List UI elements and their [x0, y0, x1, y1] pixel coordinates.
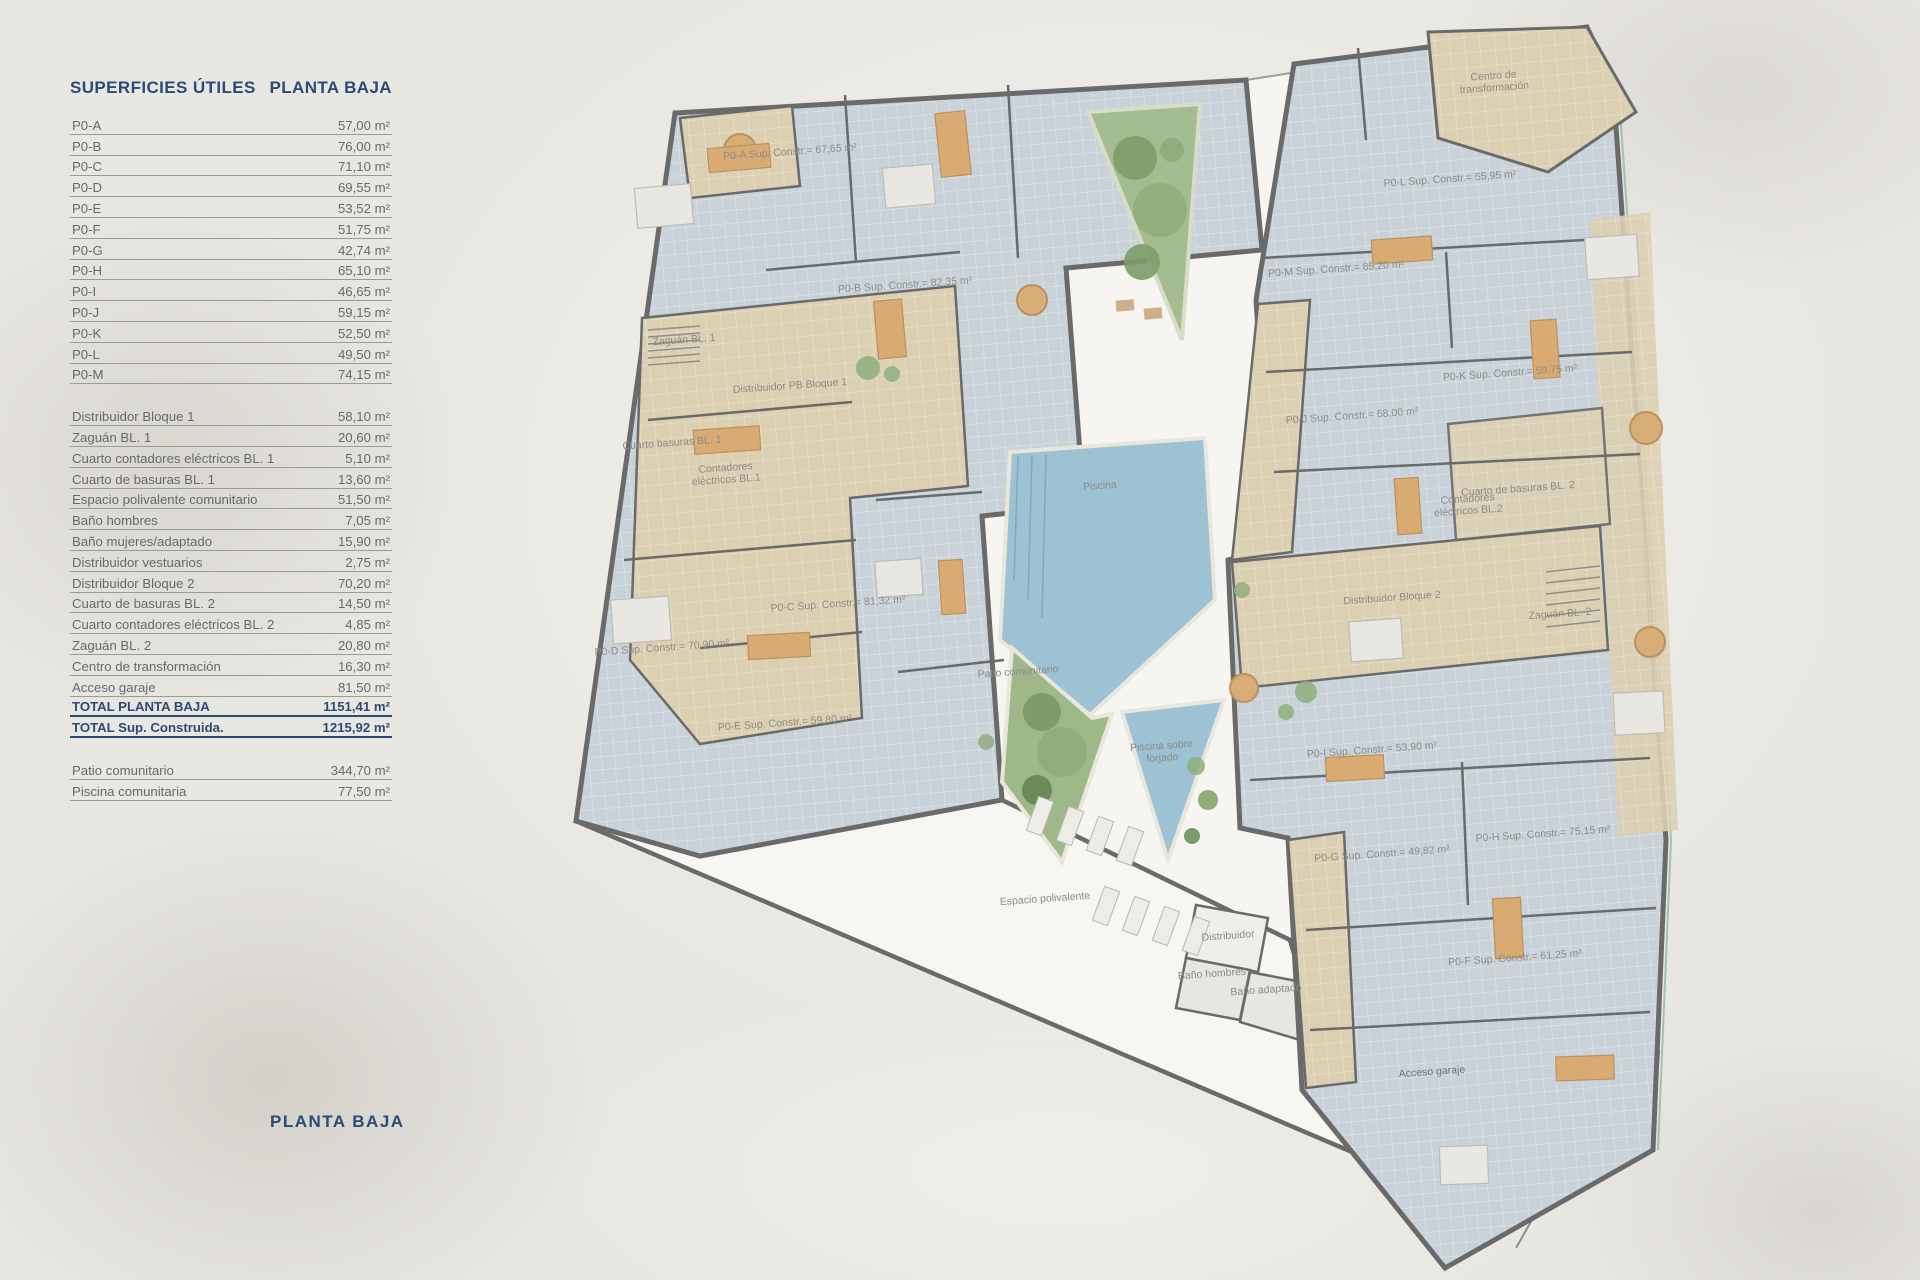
- table-row: Distribuidor Bloque 270,20 m²: [70, 572, 392, 593]
- row-value: 49,50 m²: [338, 347, 390, 362]
- row-label: P0-L: [72, 347, 100, 362]
- row-value: 59,15 m²: [338, 305, 390, 320]
- row-label: TOTAL PLANTA BAJA: [72, 699, 210, 714]
- surface-table: SUPERFICIES ÚTILES PLANTA BAJA P0-A57,00…: [70, 78, 392, 801]
- row-label: Espacio polivalente comunitario: [72, 492, 257, 507]
- row-label: P0-I: [72, 284, 96, 299]
- table-row: P0-H65,10 m²: [70, 260, 392, 281]
- row-value: 57,00 m²: [338, 118, 390, 133]
- table-row: Piscina comunitaria77,50 m²: [70, 780, 392, 801]
- table-subtitle: PLANTA BAJA: [270, 78, 392, 98]
- row-value: 1151,41 m²: [323, 699, 390, 714]
- row-value: 71,10 m²: [338, 159, 390, 174]
- row-label: P0-E: [72, 201, 101, 216]
- table-row: Patio comunitario344,70 m²: [70, 759, 392, 780]
- row-value: 13,60 m²: [338, 472, 390, 487]
- row-label: Distribuidor vestuarios: [72, 555, 202, 570]
- table-row: P0-D69,55 m²: [70, 176, 392, 197]
- row-label: P0-K: [72, 326, 101, 341]
- row-value: 1215,92 m²: [323, 720, 390, 735]
- table-row: P0-K52,50 m²: [70, 322, 392, 343]
- row-label: Distribuidor Bloque 1: [72, 409, 194, 424]
- row-value: 20,60 m²: [338, 430, 390, 445]
- table-row: TOTAL PLANTA BAJA1151,41 m²: [70, 697, 392, 718]
- table-row: P0-G42,74 m²: [70, 239, 392, 260]
- row-value: 46,65 m²: [338, 284, 390, 299]
- table-row: P0-E53,52 m²: [70, 197, 392, 218]
- row-label: P0-A: [72, 118, 101, 133]
- table-row: Cuarto de basuras BL. 113,60 m²: [70, 468, 392, 489]
- table-row: P0-L49,50 m²: [70, 343, 392, 364]
- row-value: 4,85 m²: [345, 617, 390, 632]
- patio-table: [1017, 285, 1047, 315]
- section-gap: [70, 738, 392, 759]
- table-row: Cuarto contadores eléctricos BL. 15,10 m…: [70, 447, 392, 468]
- table-row: TOTAL Sup. Construida.1215,92 m²: [70, 717, 392, 738]
- row-value: 5,10 m²: [345, 451, 390, 466]
- table-row: P0-F51,75 m²: [70, 218, 392, 239]
- row-value: 58,10 m²: [338, 409, 390, 424]
- row-label: Baño hombres: [72, 513, 158, 528]
- row-label: P0-J: [72, 305, 99, 320]
- table-title: SUPERFICIES ÚTILES: [70, 78, 256, 98]
- row-value: 77,50 m²: [338, 784, 390, 799]
- apartment-rows: P0-A57,00 m²P0-B76,00 m²P0-C71,10 m²P0-D…: [70, 114, 392, 384]
- row-value: 74,15 m²: [338, 367, 390, 382]
- table-row: Espacio polivalente comunitario51,50 m²: [70, 489, 392, 510]
- table-row: Zaguán BL. 120,60 m²: [70, 426, 392, 447]
- row-label: Centro de transformación: [72, 659, 221, 674]
- row-label: P0-C: [72, 159, 102, 174]
- row-value: 65,10 m²: [338, 263, 390, 278]
- row-label: P0-F: [72, 222, 101, 237]
- table-row: Baño hombres7,05 m²: [70, 509, 392, 530]
- table-row: Cuarto contadores eléctricos BL. 24,85 m…: [70, 613, 392, 634]
- row-label: Cuarto contadores eléctricos BL. 2: [72, 617, 274, 632]
- row-value: 81,50 m²: [338, 680, 390, 695]
- common-area-rows: Distribuidor Bloque 158,10 m²Zaguán BL. …: [70, 405, 392, 696]
- row-value: 53,52 m²: [338, 201, 390, 216]
- table-row: P0-C71,10 m²: [70, 156, 392, 177]
- total-rows: TOTAL PLANTA BAJA1151,41 m²TOTAL Sup. Co…: [70, 697, 392, 739]
- row-value: 76,00 m²: [338, 139, 390, 154]
- row-label: Cuarto de basuras BL. 2: [72, 596, 215, 611]
- table-row: P0-J59,15 m²: [70, 301, 392, 322]
- shrub: [1198, 790, 1218, 810]
- plan-title: PLANTA BAJA: [270, 1112, 405, 1132]
- section-gap: [70, 384, 392, 405]
- row-label: Distribuidor Bloque 2: [72, 576, 194, 591]
- row-value: 344,70 m²: [331, 763, 390, 778]
- row-label: P0-G: [72, 243, 103, 258]
- table-row: Distribuidor vestuarios2,75 m²: [70, 551, 392, 572]
- row-label: Piscina comunitaria: [72, 784, 186, 799]
- row-value: 51,75 m²: [338, 222, 390, 237]
- row-label: P0-B: [72, 139, 101, 154]
- table-row: P0-B76,00 m²: [70, 135, 392, 156]
- row-label: P0-D: [72, 180, 102, 195]
- table-row: P0-I46,65 m²: [70, 280, 392, 301]
- table-row: P0-A57,00 m²: [70, 114, 392, 135]
- outdoor-rows: Patio comunitario344,70 m²Piscina comuni…: [70, 759, 392, 801]
- row-label: P0-H: [72, 263, 102, 278]
- mens-bath-room: [1176, 958, 1250, 1020]
- table-row: Cuarto de basuras BL. 214,50 m²: [70, 593, 392, 614]
- shrub: [1184, 828, 1200, 844]
- row-value: 16,30 m²: [338, 659, 390, 674]
- row-value: 51,50 m²: [338, 492, 390, 507]
- row-label: Cuarto contadores eléctricos BL. 1: [72, 451, 274, 466]
- patio-table: [1230, 674, 1258, 702]
- row-value: 2,75 m²: [345, 555, 390, 570]
- row-value: 14,50 m²: [338, 596, 390, 611]
- row-label: Zaguán BL. 2: [72, 638, 151, 653]
- table-row: Centro de transformación16,30 m²: [70, 655, 392, 676]
- table-row: Acceso garaje81,50 m²: [70, 676, 392, 697]
- row-label: TOTAL Sup. Construida.: [72, 720, 224, 735]
- table-row: P0-M74,15 m²: [70, 364, 392, 385]
- page: P0-A Sup. Constr.= 67,65 m² P0-B Sup. Co…: [0, 0, 1920, 1280]
- table-row: Distribuidor Bloque 158,10 m²: [70, 405, 392, 426]
- table-row: Zaguán BL. 220,80 m²: [70, 634, 392, 655]
- row-value: 15,90 m²: [338, 534, 390, 549]
- row-value: 69,55 m²: [338, 180, 390, 195]
- row-value: 70,20 m²: [338, 576, 390, 591]
- row-label: Cuarto de basuras BL. 1: [72, 472, 215, 487]
- row-value: 20,80 m²: [338, 638, 390, 653]
- table-header: SUPERFICIES ÚTILES PLANTA BAJA: [70, 78, 392, 98]
- row-label: Acceso garaje: [72, 680, 156, 695]
- row-value: 7,05 m²: [345, 513, 390, 528]
- row-label: Baño mujeres/adaptado: [72, 534, 212, 549]
- row-label: Patio comunitario: [72, 763, 174, 778]
- row-label: P0-M: [72, 367, 104, 382]
- table-row: Baño mujeres/adaptado15,90 m²: [70, 530, 392, 551]
- row-label: Zaguán BL. 1: [72, 430, 151, 445]
- row-value: 52,50 m²: [338, 326, 390, 341]
- row-value: 42,74 m²: [338, 243, 390, 258]
